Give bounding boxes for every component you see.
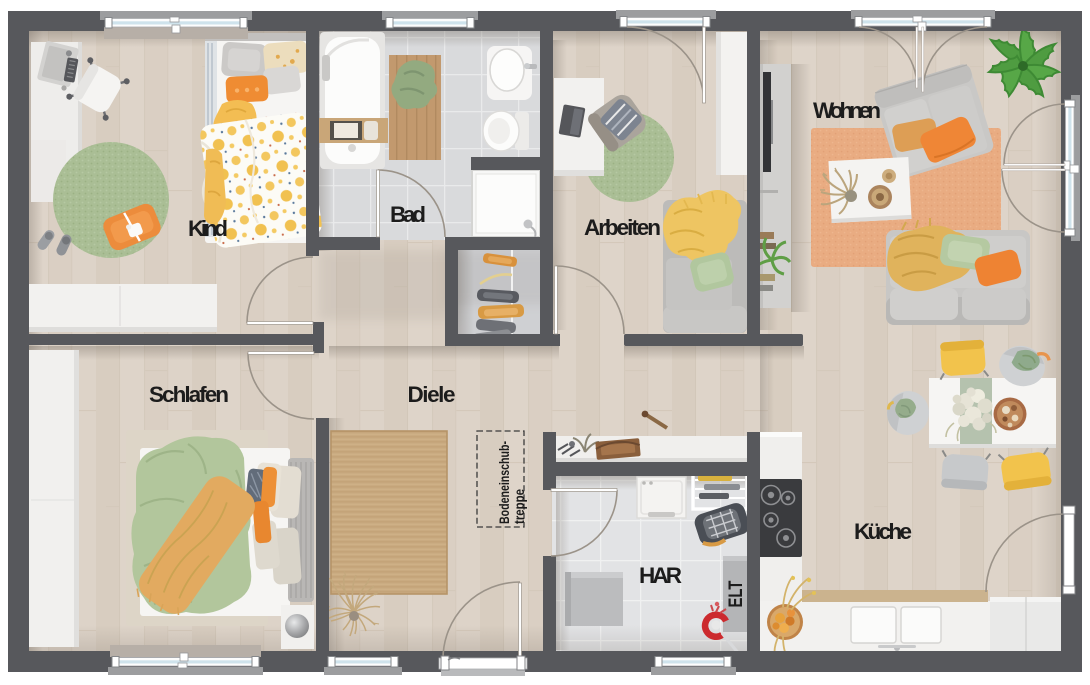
svg-text:Bad: Bad bbox=[390, 202, 426, 227]
svg-text:Küche: Küche bbox=[854, 519, 912, 544]
svg-text:Wohnen: Wohnen bbox=[813, 98, 881, 123]
svg-text:Bodeneinschub-: Bodeneinschub- bbox=[496, 441, 512, 524]
svg-text:treppe: treppe bbox=[511, 489, 527, 524]
svg-text:ELT: ELT bbox=[726, 580, 747, 607]
svg-text:Schlafen: Schlafen bbox=[149, 382, 229, 407]
svg-text:Arbeiten: Arbeiten bbox=[584, 215, 661, 240]
svg-text:Kind: Kind bbox=[188, 216, 228, 241]
svg-text:Diele: Diele bbox=[408, 382, 456, 407]
svg-text:HAR: HAR bbox=[639, 563, 682, 588]
